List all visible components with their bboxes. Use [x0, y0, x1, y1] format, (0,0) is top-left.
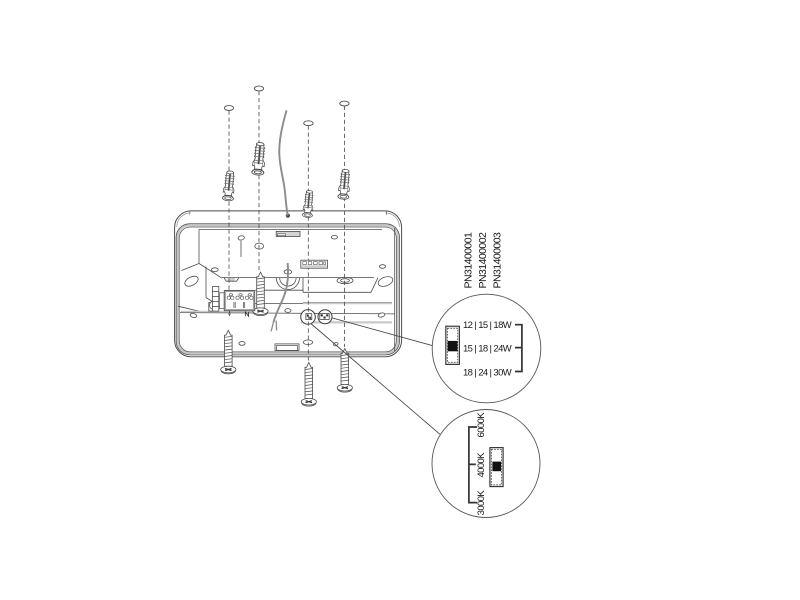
svg-text:12 | 15 | 18W: 12 | 15 | 18W — [463, 320, 512, 331]
svg-text:6000K: 6000K — [476, 412, 487, 438]
svg-text:15 | 18 | 24W: 15 | 18 | 24W — [463, 343, 512, 354]
svg-text:PN31400003: PN31400003 — [491, 232, 503, 289]
svg-text:4000K: 4000K — [476, 452, 487, 478]
svg-text:3000K: 3000K — [476, 490, 487, 516]
svg-text:PN31400001: PN31400001 — [462, 232, 474, 289]
svg-text:18 | 24 | 30W: 18 | 24 | 30W — [463, 367, 512, 378]
svg-text:PN31400002: PN31400002 — [477, 232, 489, 289]
